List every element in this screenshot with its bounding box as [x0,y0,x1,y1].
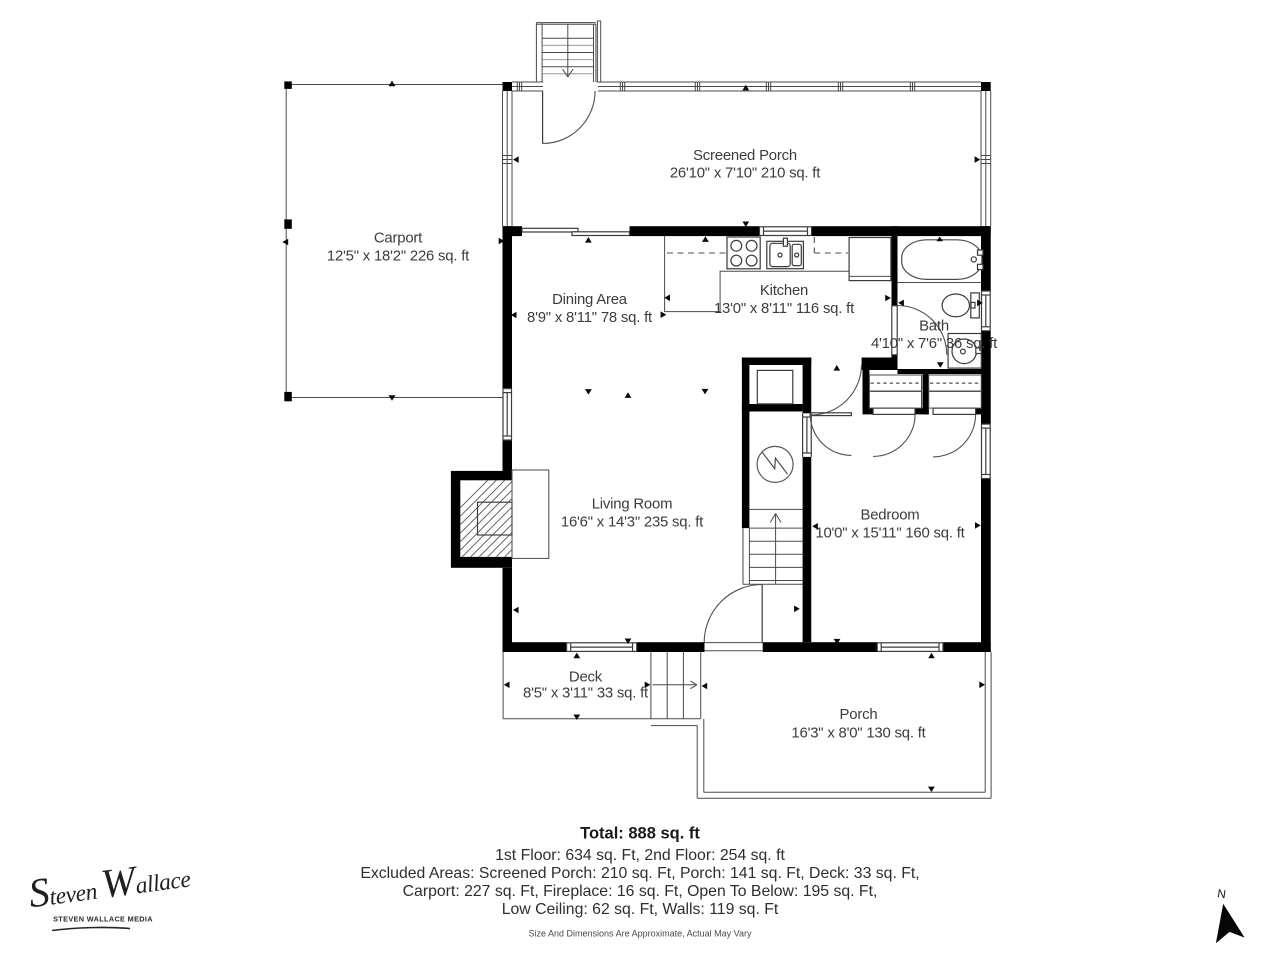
svg-text:Excluded Areas: Screened Porch: Excluded Areas: Screened Porch: 210 sq. … [360,865,919,882]
svg-text:8'5" x 3'11" 33 sq. ft: 8'5" x 3'11" 33 sq. ft [523,686,649,702]
svg-text:8'9" x 8'11" 78 sq. ft: 8'9" x 8'11" 78 sq. ft [527,310,653,326]
svg-text:Bath: Bath [919,319,949,335]
svg-text:26'10" x 7'10" 210 sq. ft: 26'10" x 7'10" 210 sq. ft [670,166,821,182]
svg-text:STEVEN WALLACE MEDIA: STEVEN WALLACE MEDIA [53,915,153,924]
svg-text:13'0" x 8'11" 116 sq. ft: 13'0" x 8'11" 116 sq. ft [714,301,855,317]
svg-text:12'5" x 18'2" 226 sq. ft: 12'5" x 18'2" 226 sq. ft [327,249,470,265]
svg-text:Carport: Carport [374,231,423,247]
svg-text:Bedroom: Bedroom [860,508,919,524]
svg-text:Porch: Porch [840,707,878,723]
svg-text:Total: 888 sq. ft: Total: 888 sq. ft [580,825,700,843]
svg-text:Dining Area: Dining Area [552,292,628,308]
svg-text:Screened Porch: Screened Porch [693,148,797,164]
svg-text:Steven Wallace: Steven Wallace [26,850,193,917]
svg-text:Carport: 227 sq. Ft, Fireplace: Carport: 227 sq. Ft, Fireplace: 16 sq. F… [403,883,878,900]
svg-text:Living Room: Living Room [592,497,673,513]
svg-text:1st Floor: 634 sq. Ft, 2nd Flo: 1st Floor: 634 sq. Ft, 2nd Floor: 254 sq… [495,847,785,864]
svg-text:16'3" x 8'0" 130 sq. ft: 16'3" x 8'0" 130 sq. ft [791,726,926,742]
svg-text:Size And Dimensions Are Approx: Size And Dimensions Are Approximate, Act… [529,929,752,939]
svg-text:Low Ceiling: 62 sq. Ft, Walls:: Low Ceiling: 62 sq. Ft, Walls: 119 sq. F… [502,901,779,918]
svg-text:10'0" x 15'11" 160 sq. ft: 10'0" x 15'11" 160 sq. ft [815,526,965,542]
svg-text:Deck: Deck [569,670,603,686]
svg-text:4'10" x 7'6" 36 sq. ft: 4'10" x 7'6" 36 sq. ft [871,336,998,352]
svg-text:Kitchen: Kitchen [760,283,808,299]
svg-text:16'6" x 14'3" 235 sq. ft: 16'6" x 14'3" 235 sq. ft [561,515,704,531]
svg-text:N: N [1216,886,1226,901]
